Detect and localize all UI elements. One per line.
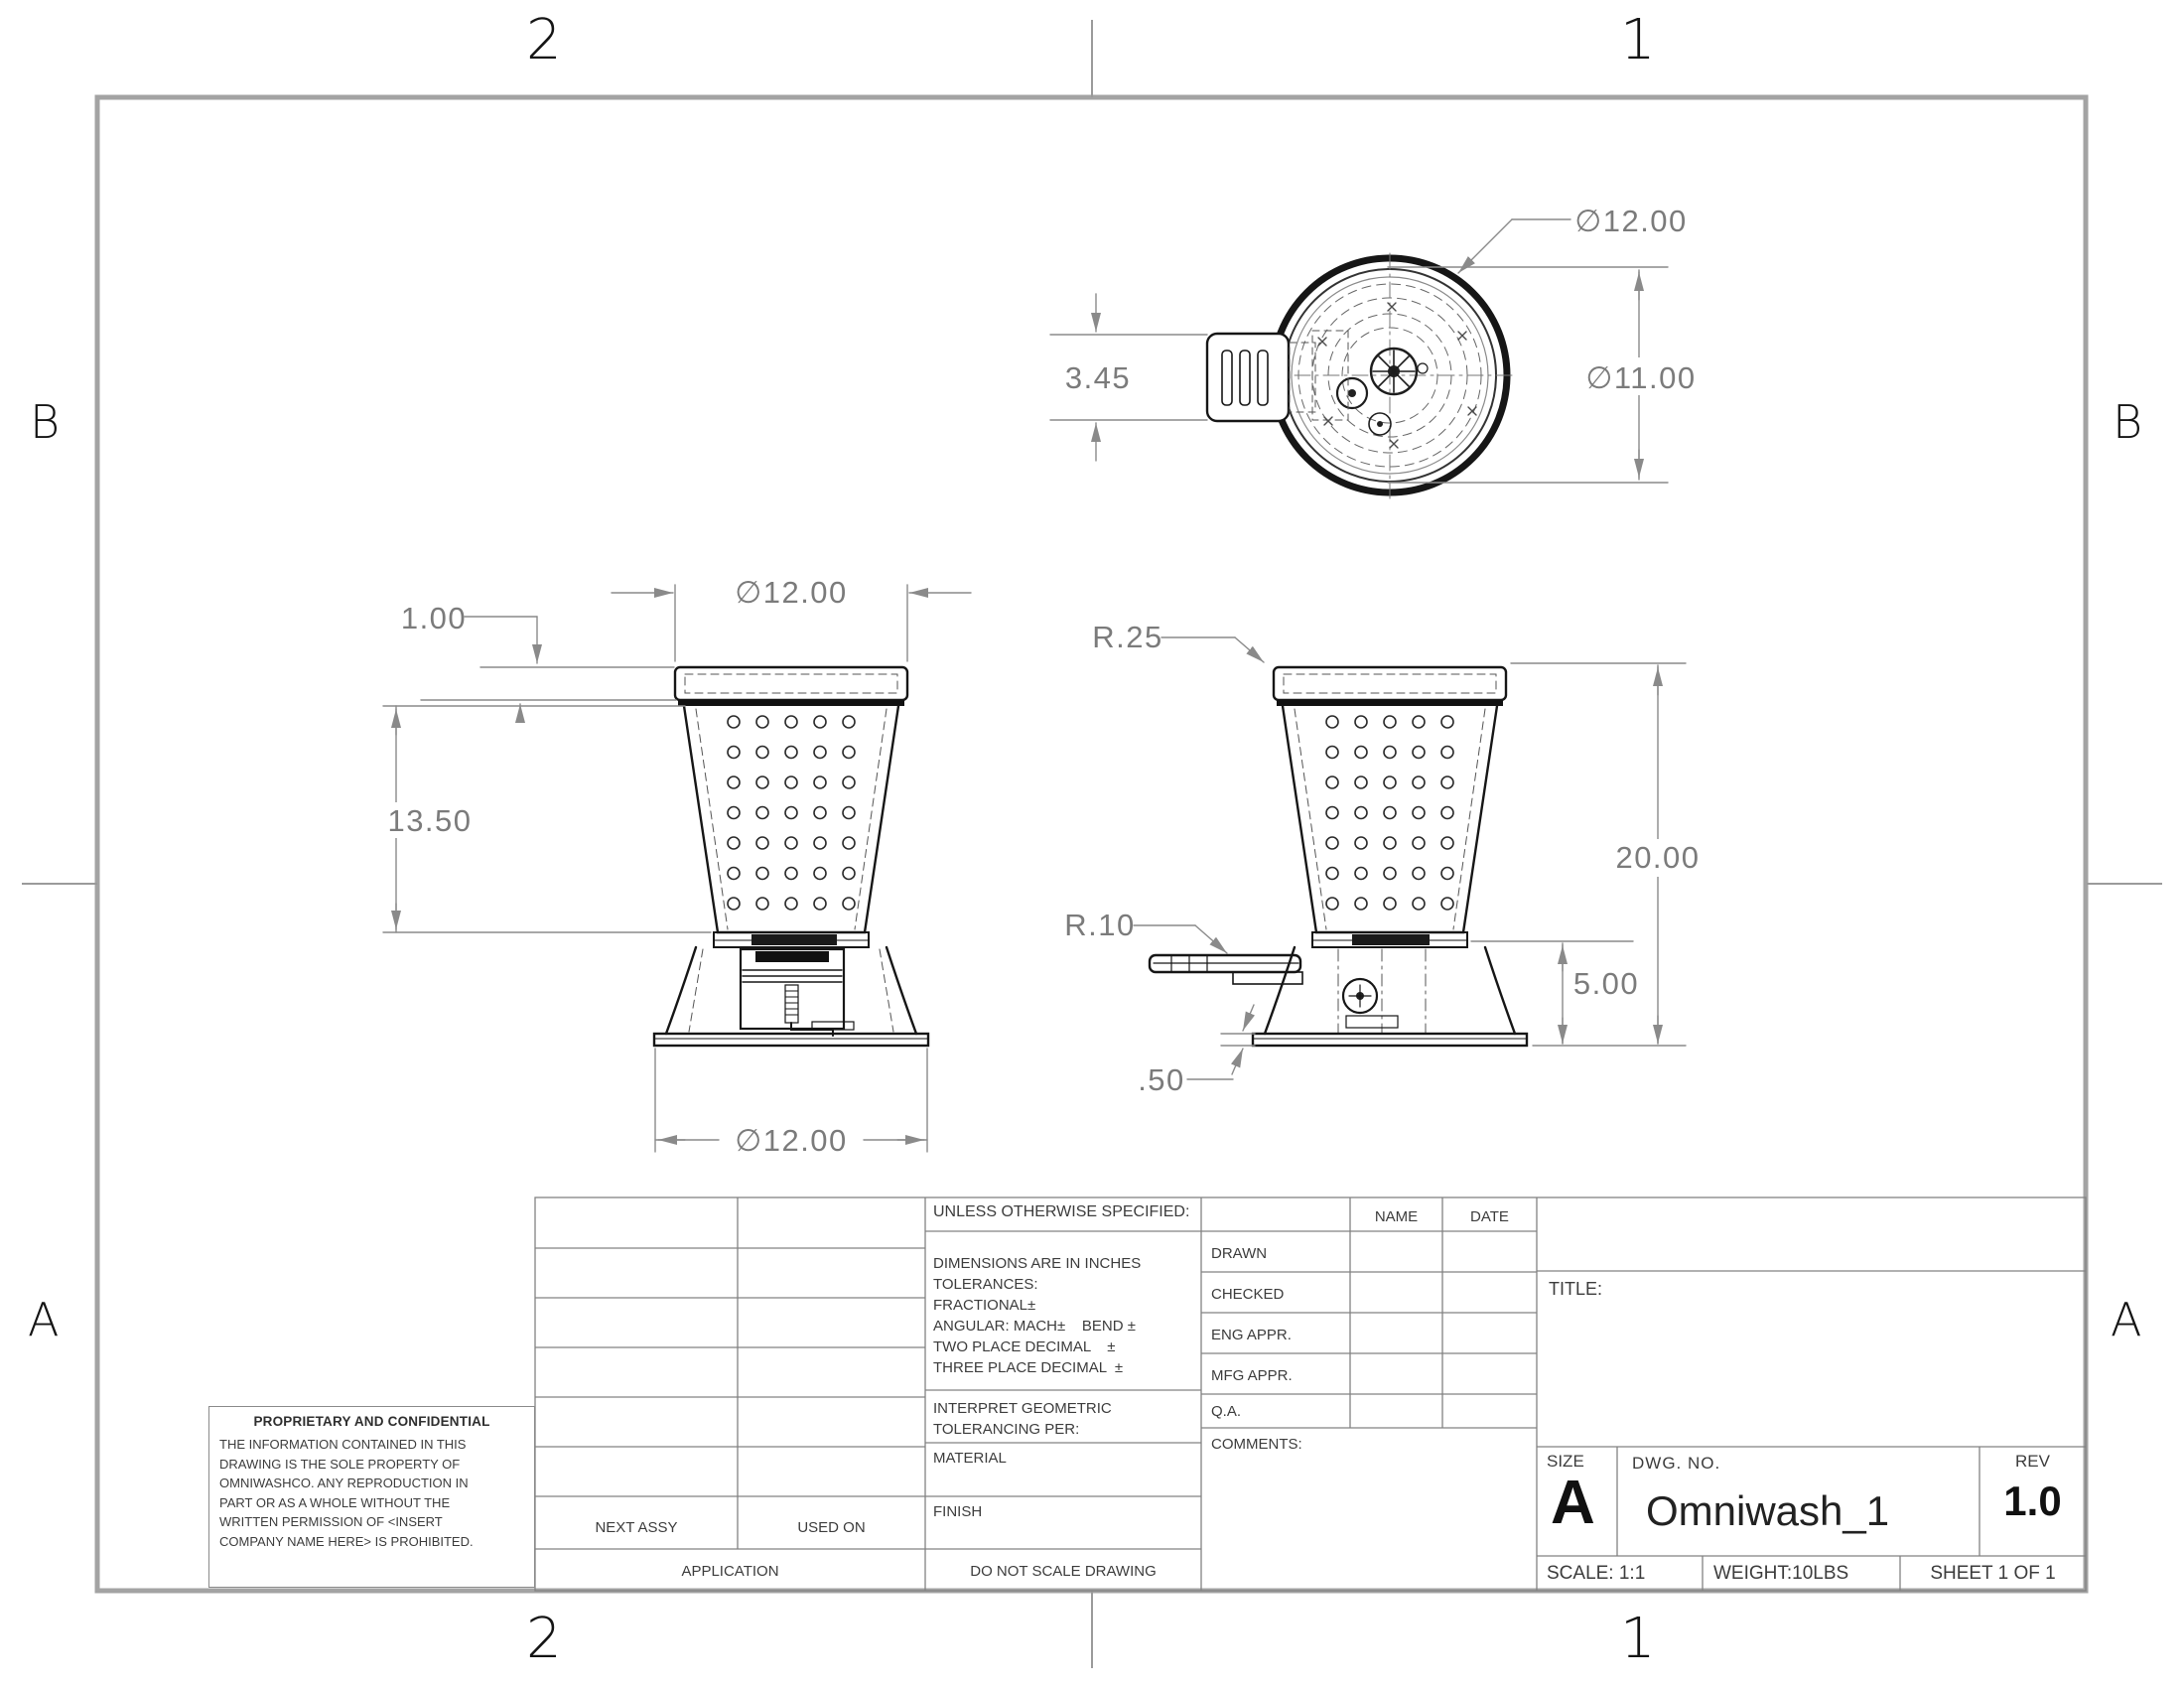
title-label: TITLE: [1549,1279,1602,1300]
front-top-diameter-dim: ∅12.00 [735,575,848,610]
sheet-value: SHEET 1 OF 1 [1900,1563,2086,1585]
finish-label: FINISH [933,1501,982,1522]
used-on-label: USED ON [738,1517,925,1538]
interpret-line-2: TOLERANCING PER: [933,1419,1079,1440]
side-rim-radius-dim: R.25 [1092,620,1162,654]
size-value: A [1551,1468,1595,1538]
front-base-diameter-dim: ∅12.00 [735,1123,848,1158]
zone-label-left-b: B [30,395,60,449]
perforation-holes-side [1326,716,1453,910]
pump-mechanism [741,949,854,1036]
side-base-height-dim: 5.00 [1573,966,1639,1001]
front-view-drawing: ∅12.00 1.00 13.50 ∅12.00 [383,575,971,1158]
rev-value: 1.0 [1979,1477,2086,1525]
zone-label-left-a: A [28,1293,59,1346]
drawn-row-label: DRAWN [1211,1243,1267,1264]
proprietary-notice: PROPRIETARY AND CONFIDENTIAL THE INFORMA… [208,1406,535,1588]
weight-value: WEIGHT:10LBS [1713,1563,1848,1585]
proprietary-line: COMPANY NAME HERE> IS PROHIBITED. [219,1532,524,1552]
checked-row-label: CHECKED [1211,1284,1284,1305]
proprietary-line: DRAWING IS THE SOLE PROPERTY OF [219,1455,524,1475]
eng-appr-row-label: ENG APPR. [1211,1325,1292,1345]
do-not-scale-label: DO NOT SCALE DRAWING [925,1561,1201,1582]
proprietary-line: PART OR AS A WHOLE WITHOUT THE [219,1493,524,1513]
front-body-height-dim: 13.50 [387,803,472,838]
qa-row-label: Q.A. [1211,1401,1241,1422]
dwg-no-value: Omniwash_1 [1646,1487,1889,1535]
drawing-sheet: ∅12.00 ∅11.00 3.45 [0,0,2184,1688]
spec-line-6: THREE PLACE DECIMAL ± [933,1357,1123,1378]
spec-line-5: TWO PLACE DECIMAL ± [933,1336,1116,1357]
next-assy-label: NEXT ASSY [535,1517,738,1538]
proprietary-line: OMNIWASHCO. ANY REPRODUCTION IN [219,1474,524,1493]
spec-line-1: DIMENSIONS ARE IN INCHES [933,1253,1141,1274]
side-plate-thickness-dim: .50 [1138,1062,1185,1097]
side-overall-height-dim: 20.00 [1615,840,1700,875]
interpret-line-1: INTERPRET GEOMETRIC [933,1398,1112,1419]
perforation-holes-front [728,716,855,910]
proprietary-line: THE INFORMATION CONTAINED IN THIS [219,1435,524,1455]
zone-label-top-1: 1 [1620,8,1656,72]
comments-row-label: COMMENTS: [1211,1434,1302,1455]
scale-value: SCALE: 1:1 [1547,1563,1645,1585]
side-view-drawing: R.25 R.10 20.00 5.00 .50 [1064,620,1707,1097]
dwg-no-label: DWG. NO. [1632,1454,1720,1474]
spec-line-4: ANGULAR: MACH± BEND ± [933,1316,1136,1336]
top-outer-diameter-dim: ∅12.00 [1574,204,1688,238]
top-view-drawing: ∅12.00 ∅11.00 3.45 [1050,204,1702,498]
proprietary-heading: PROPRIETARY AND CONFIDENTIAL [213,1414,530,1429]
zone-label-top-2: 2 [526,8,562,72]
spout-side [1150,955,1302,984]
material-label: MATERIAL [933,1448,1007,1469]
top-inner-diameter-dim: ∅11.00 [1585,360,1696,395]
spec-line-2: TOLERANCES: [933,1274,1038,1295]
proprietary-line: WRITTEN PERMISSION OF <INSERT [219,1512,524,1532]
zone-label-right-b: B [2113,395,2142,449]
application-label: APPLICATION [535,1561,925,1582]
unless-otherwise-specified: UNLESS OTHERWISE SPECIFIED: [933,1203,1197,1221]
zone-label-bottom-1: 1 [1620,1607,1656,1671]
zone-label-bottom-2: 2 [526,1607,562,1671]
top-handle-width-dim: 3.45 [1065,360,1131,395]
mfg-appr-row-label: MFG APPR. [1211,1365,1293,1386]
name-column-header: NAME [1350,1206,1442,1227]
date-column-header: DATE [1442,1206,1537,1227]
base-motor-detail [1343,979,1398,1028]
front-lid-height-dim: 1.00 [401,601,467,635]
side-spout-radius-dim: R.10 [1064,908,1135,942]
spec-line-3: FRACTIONAL± [933,1295,1035,1316]
rev-label: REV [1979,1452,2086,1472]
zone-label-right-a: A [2111,1293,2141,1346]
front-view-dimensions [383,585,971,1152]
